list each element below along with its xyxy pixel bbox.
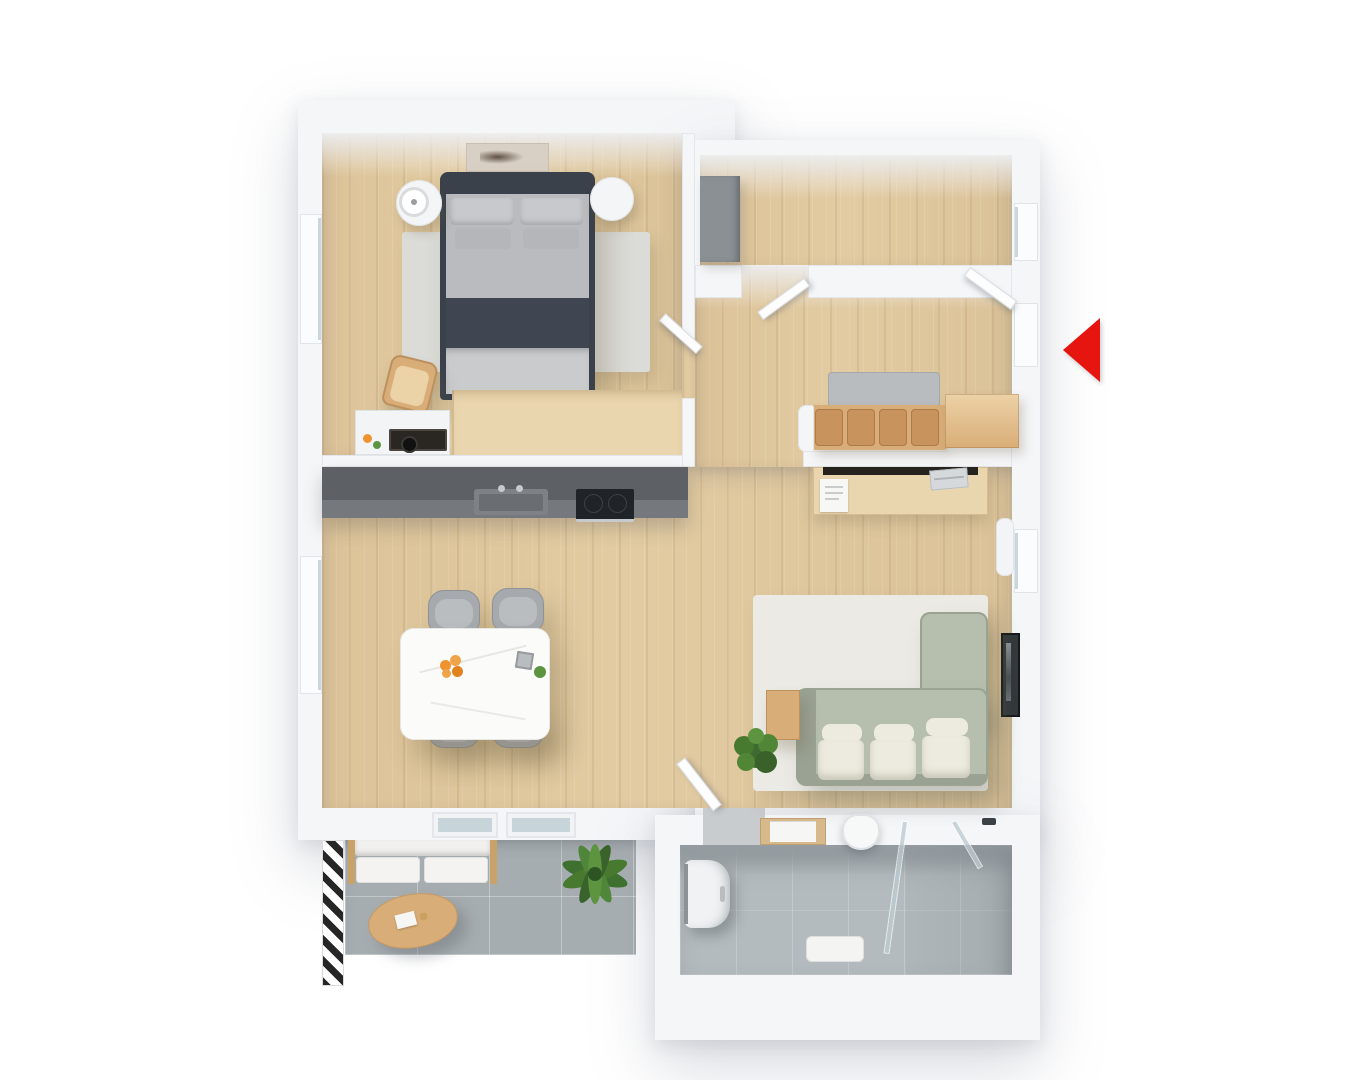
art-paint-smear: [480, 150, 524, 164]
bench-cushion-3: [879, 409, 907, 446]
hall-bench-armrest: [798, 405, 814, 452]
storage-wardrobe: [700, 176, 740, 262]
hall-bench-backrest: [828, 372, 940, 408]
balcony-door-left-glass: [438, 818, 492, 832]
bedroom-window-glass: [318, 218, 321, 340]
vestibule-floor: [703, 808, 765, 845]
washer-door-edge: [684, 864, 688, 924]
outdoor-sofa-cushion-left: [356, 857, 420, 883]
deco-flower-orange: [363, 434, 372, 443]
sofa-seat-cushion-2: [870, 740, 916, 780]
table-cup: [419, 912, 428, 921]
balcony-railing-hatch: [322, 840, 344, 986]
table-book: [394, 911, 417, 929]
towel-shelf: [760, 818, 826, 845]
sink-basin: [479, 494, 543, 511]
living-plant: [726, 722, 788, 782]
outdoor-sofa-backrest: [355, 840, 490, 856]
outdoor-sofa-frame-left: [348, 840, 355, 884]
bench-cushion-2: [847, 409, 875, 446]
wall-picture: [1001, 633, 1020, 717]
record-player-disc: [401, 436, 418, 453]
console-desk: [813, 467, 988, 515]
bench-cushion-1: [815, 409, 843, 446]
folded-towels: [770, 821, 816, 842]
sofa-seat-cushion-3: [922, 736, 970, 778]
marble-vein-2: [431, 702, 526, 721]
radiator: [996, 518, 1014, 576]
entrance-door-recess: [1014, 303, 1038, 367]
bedroom-right-wall-upper: [682, 133, 695, 340]
bed-duvet-fold: [446, 348, 589, 394]
lamp-finial: [411, 199, 417, 205]
balcony-palm-plant: [545, 828, 645, 920]
stereo-display: [389, 429, 447, 451]
table-herb: [534, 666, 546, 678]
burner-left: [584, 494, 603, 513]
dining-chair-top-right: [492, 588, 544, 632]
deco-flower-green: [373, 441, 381, 449]
bath-mat: [806, 936, 864, 962]
bedroom-bottom-wall: [322, 455, 695, 467]
shower-area-tint: [906, 846, 1012, 974]
desk-paper: [820, 479, 848, 512]
entrance-arrow-icon: [1063, 318, 1100, 382]
table-trivet: [515, 651, 534, 670]
nightstand-right: [590, 177, 634, 221]
shower-head: [982, 818, 996, 825]
marble-vein: [419, 645, 526, 674]
storage-bottom-wall-left: [695, 265, 742, 298]
storage-room-floor: [700, 155, 1012, 265]
floor-plan-canvas: [0, 0, 1350, 1080]
washing-machine: [684, 860, 730, 928]
cooktop: [576, 489, 634, 522]
wall-hung-toilet: [842, 814, 880, 850]
chair-seat: [435, 599, 473, 628]
table-lamp: [399, 187, 429, 217]
bed-pillow-4: [523, 228, 579, 249]
kitchen-window-glass: [318, 560, 321, 690]
outdoor-sofa-frame-right: [490, 840, 497, 884]
outdoor-sofa-cushion-right: [424, 857, 488, 883]
bed-pillow-3: [455, 228, 511, 249]
double-bed: [440, 172, 595, 400]
desk-laptop: [929, 467, 969, 490]
bed-pillow-2: [520, 198, 583, 225]
dining-table: [400, 628, 550, 740]
bedroom-low-wardrobe: [452, 390, 682, 455]
storage-window-glass: [1015, 207, 1018, 257]
kitchen-counter: [322, 467, 688, 518]
shoe-cabinet: [945, 394, 1019, 448]
kitchen-sink: [474, 489, 548, 515]
bedroom-wall-art: [466, 143, 549, 172]
sofa-back-pillow-3: [926, 718, 968, 736]
faucet-knob-right: [516, 485, 523, 492]
faucet-knob-left: [498, 485, 505, 492]
bed-dark-blanket-band: [446, 298, 589, 348]
living-window-glass: [1015, 533, 1018, 589]
bed-pillow-1: [450, 198, 514, 225]
armchair-seat: [389, 364, 431, 407]
burner-right: [608, 494, 627, 513]
sofa-seat-cushion-1: [818, 740, 864, 780]
chair-seat: [499, 597, 537, 626]
bedroom-sideboard: [355, 410, 450, 455]
fruit-bowl: [438, 654, 468, 680]
bench-cushion-4: [911, 409, 939, 446]
washer-handle: [720, 886, 725, 902]
bedroom-right-wall-lower: [682, 398, 695, 467]
